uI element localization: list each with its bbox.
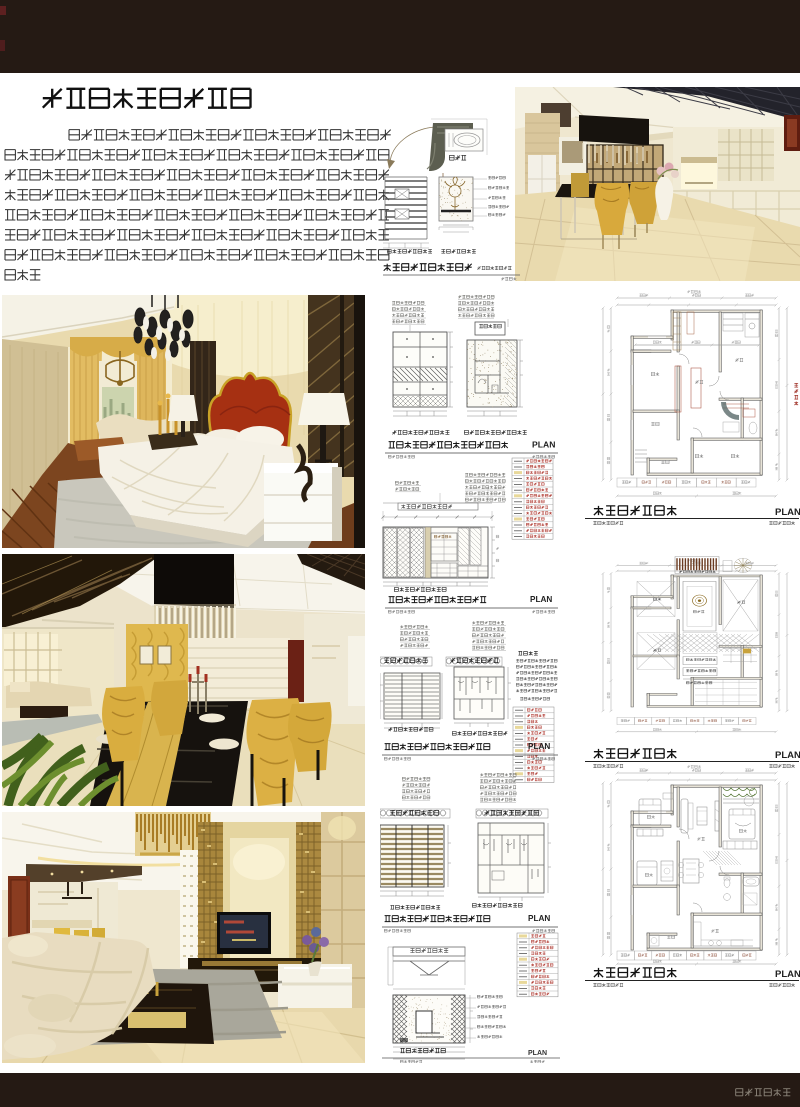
- svg-text:PLAN: PLAN: [532, 440, 555, 450]
- svg-text:PLAN: PLAN: [528, 914, 550, 923]
- svg-text:PLAN: PLAN: [528, 1050, 547, 1057]
- svg-text:PLAN: PLAN: [530, 595, 552, 604]
- svg-text:PLAN: PLAN: [775, 969, 800, 980]
- svg-text:PLAN: PLAN: [775, 750, 800, 761]
- svg-text:PLAN: PLAN: [528, 742, 550, 751]
- svg-text:PLAN: PLAN: [775, 507, 800, 518]
